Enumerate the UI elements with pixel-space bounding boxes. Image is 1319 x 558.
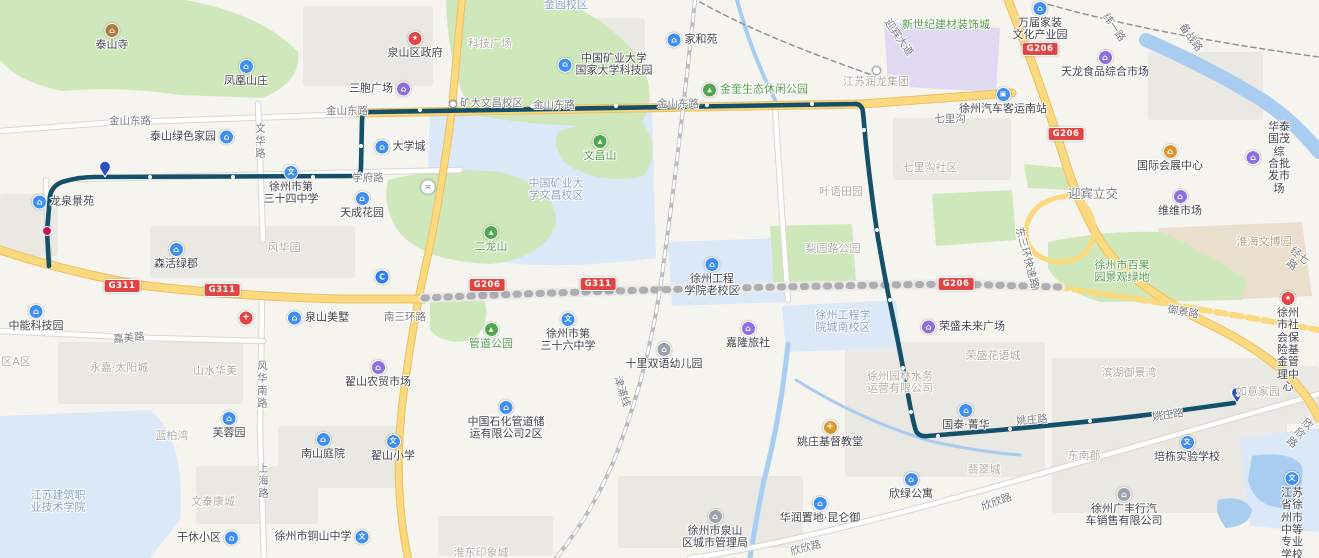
- map-label-text: 嘉隆旅社: [726, 337, 770, 349]
- blue-icon: ⌂: [705, 257, 720, 272]
- blue-icon: ⌂: [667, 33, 682, 48]
- road-badge: G206: [938, 277, 975, 291]
- map-label: 蓝柏湾: [156, 430, 189, 442]
- map-label: 江苏建筑职 业技术学院: [31, 490, 86, 515]
- map-viewport[interactable]: ⌂泰山寺金园校区⌂凤凰山庄★泉山区政府三胞广场⌂科技广场⌂中国矿业大学 国家大学…: [0, 0, 1319, 558]
- map-label[interactable]: 干休小区⌂: [177, 531, 239, 546]
- map-label[interactable]: ⌂十里双语幼儿园: [626, 342, 703, 370]
- map-label: 科技广场: [468, 38, 512, 50]
- map-label-text: 天龙食品综合市场: [1061, 66, 1149, 78]
- map-label-text: 江苏润龙集团: [843, 76, 909, 88]
- map-label-text: 风华园: [268, 242, 301, 254]
- map-label-text: 南三环路: [384, 312, 426, 324]
- map-label: 翡翠城: [968, 464, 1001, 476]
- school-icon: 文: [561, 312, 576, 327]
- map-label[interactable]: ⌂天龙食品综合市场: [1061, 50, 1149, 78]
- map-label: 新世纪建材装饰城: [902, 19, 990, 31]
- map-label: 淮海文博园: [1237, 236, 1292, 248]
- road-badge: G206: [469, 278, 506, 292]
- map-label: 叶语田园: [819, 186, 863, 198]
- map-label: 欣欣路: [1280, 414, 1318, 454]
- school-icon: 文: [1180, 435, 1195, 450]
- map-label-layer: ⌂泰山寺金园校区⌂凤凰山庄★泉山区政府三胞广场⌂科技广场⌂中国矿业大学 国家大学…: [0, 0, 1319, 558]
- map-label-text: 嘉美路: [113, 332, 145, 346]
- blue-icon: ⌂: [375, 140, 390, 155]
- map-label-text: 江苏建筑职 业技术学院: [31, 490, 86, 515]
- map-label: 七里沟社区: [903, 162, 958, 174]
- map-label[interactable]: ⌂大学城: [375, 140, 426, 155]
- park-icon: ▲: [484, 225, 499, 240]
- blue-icon: ⌂: [222, 411, 237, 426]
- church-icon: +: [823, 420, 838, 435]
- map-label-text: 东南郡: [1068, 450, 1101, 462]
- map-label-text: 迎宾立交: [1068, 187, 1118, 201]
- map-label-text: 欣欣路: [1280, 414, 1318, 454]
- map-label: 金山东路: [657, 99, 699, 111]
- junction-icon: ≍: [421, 180, 436, 195]
- map-label: 金山东路: [326, 106, 368, 118]
- map-label-text: 翟山小学: [371, 450, 415, 462]
- map-label[interactable]: ⌂龙泉景苑: [32, 195, 94, 210]
- road-badge: G311: [580, 277, 617, 291]
- map-label-text: 十里双语幼儿园: [626, 358, 703, 370]
- map-label-text: 徐州工程 学院老校区: [685, 273, 740, 298]
- map-label-text: 金山东路: [533, 100, 575, 112]
- market-icon: ⌂: [921, 320, 936, 335]
- map-label-text: 泉山美墅: [305, 312, 349, 324]
- map-label: 金山东路: [533, 100, 575, 112]
- map-label[interactable]: ⌂翟山农贸市场: [345, 360, 411, 388]
- map-label[interactable]: ⌂徐州工程 学院老校区: [685, 257, 740, 298]
- map-label: ▲二龙山: [475, 225, 508, 253]
- map-label[interactable]: ⌂泰山寺: [96, 23, 129, 51]
- redplus-icon: +: [239, 311, 254, 326]
- map-label-text: 徐州汽车客运南站: [959, 103, 1047, 115]
- map-label-text: 欣欣路: [789, 539, 822, 558]
- map-label-text: 科技广场: [468, 38, 512, 50]
- map-label: 风华园: [268, 242, 301, 254]
- map-label-text: 七里沟社区: [903, 162, 958, 174]
- map-label[interactable]: 三胞广场⌂: [349, 82, 411, 97]
- blue-icon: ⌂: [499, 400, 514, 415]
- market-icon: ⌂: [1173, 189, 1188, 204]
- map-label: 徐州工程学 院城南校区: [816, 310, 871, 335]
- map-label-text: 荣盛未来广场: [939, 321, 1005, 333]
- market-icon: ⌂: [741, 321, 756, 336]
- map-label: 嘉美路: [113, 332, 145, 346]
- map-label-text: 姚庄路: [1152, 408, 1185, 424]
- map-label[interactable]: ⌂芙蓉园: [213, 411, 246, 439]
- school-icon: 文: [1285, 471, 1300, 486]
- map-label-text: 维维市场: [1158, 205, 1202, 217]
- map-label-text: 徐州市百果 园景观绿地: [1095, 260, 1150, 285]
- map-label: 金园校区: [544, 0, 588, 11]
- map-label: 金山东路: [109, 116, 151, 128]
- map-label: 上海路: [256, 462, 268, 500]
- map-label: 江苏润龙集团: [843, 66, 909, 88]
- map-label-text: 淮东印象城: [454, 547, 509, 558]
- map-label-text: 大学城: [393, 141, 426, 153]
- map-label: 滨湖御景湾: [1102, 367, 1157, 379]
- map-label-text: 泰山寺: [96, 39, 129, 51]
- school-icon: 文: [355, 530, 370, 545]
- blue-icon: ⌂: [813, 496, 828, 511]
- map-label: 南三环路: [384, 312, 426, 324]
- map-label: 中国矿业大 学文昌校区: [529, 178, 584, 203]
- map-label-text: 风华南路: [255, 360, 267, 410]
- map-label: 徐州园林水务 运营有限公司: [867, 371, 933, 396]
- market-icon: ⌂: [371, 360, 386, 375]
- map-label[interactable]: ⌂中国矿业大学 国家大学科技园: [558, 53, 653, 78]
- map-label-text: 荣盛花语城: [966, 350, 1021, 362]
- map-label-text: 泉山区政府: [388, 47, 443, 59]
- map-label[interactable]: 文徐州市第 三十四中学: [264, 165, 319, 206]
- road-badge: G206: [1022, 42, 1059, 56]
- map-label[interactable]: ⌂森活绿郡: [154, 242, 198, 270]
- road-badge: G311: [104, 279, 141, 293]
- blue-icon: ⌂: [287, 311, 302, 326]
- map-label-text: 欣欣路: [980, 492, 1014, 514]
- map-label-text: 凤凰山庄: [224, 75, 268, 87]
- ramp-icon: C: [375, 270, 390, 285]
- map-label-text: 华润置地·昆仑御: [780, 512, 861, 524]
- map-label-text: 中国矿业大学 国家大学科技园: [576, 53, 653, 78]
- map-label-text: 区A区: [1, 356, 31, 368]
- bus-icon: ▣: [996, 87, 1011, 102]
- map-label: ▲文昌山: [584, 134, 617, 162]
- blue-icon: ⌂: [316, 432, 331, 447]
- map-label: 山水华美: [193, 365, 237, 377]
- map-label-text: 淮海文博园: [1237, 236, 1292, 248]
- map-label-text: 徐州市第 三十六中学: [541, 328, 596, 353]
- map-label-text: 纬一路: [1099, 12, 1127, 45]
- blue-icon: ⌂: [239, 59, 254, 74]
- map-label: 经七路: [1278, 244, 1311, 277]
- dot-icon: [872, 66, 881, 75]
- map-label-text: 山水华美: [193, 365, 237, 377]
- map-label[interactable]: ⌂家和苑: [667, 33, 718, 48]
- map-label[interactable]: ⌂维维市场: [1158, 189, 1202, 217]
- map-label[interactable]: 文江苏省徐州市 中等专业学校: [1279, 471, 1306, 558]
- map-label-text: 徐州市社会保 险基金管理中心: [1273, 307, 1304, 393]
- gov-icon: ★: [408, 31, 423, 46]
- map-label-text: 徐州广丰行汽 车销售有限公司: [1086, 503, 1163, 528]
- map-label-text: 备战路: [1176, 22, 1204, 55]
- map-label-text: 家和苑: [685, 34, 718, 46]
- map-label[interactable]: ⌂欣绿公寓: [889, 472, 933, 500]
- blue-icon: ⌂: [959, 403, 974, 418]
- map-label-text: 梨园路公园: [806, 243, 861, 255]
- map-label[interactable]: ⌂万届家装 文化产业园: [1013, 1, 1068, 42]
- map-label-text: 管道公园: [469, 338, 513, 350]
- map-label[interactable]: ⌂中国石化管道储 运有限公司2区: [468, 400, 545, 441]
- map-label-text: 永嘉·太阳城: [90, 362, 149, 374]
- map-label: 东三环快速路: [1012, 226, 1040, 290]
- road-badge: G206: [1048, 127, 1085, 141]
- map-label: 欣欣路: [789, 539, 822, 558]
- map-label: 迎宾立交: [1068, 187, 1118, 201]
- map-label-text: 三胞广场: [349, 83, 393, 95]
- map-label[interactable]: 文徐州市第 三十六中学: [541, 312, 596, 353]
- map-label-text: 江苏省徐州市 中等专业学校: [1279, 487, 1306, 558]
- map-label[interactable]: ⌂嘉隆旅社: [726, 321, 770, 349]
- map-label[interactable]: ⌂泉山美墅: [287, 311, 349, 326]
- map-label-text: 上海路: [256, 462, 268, 500]
- map-label-text: 中国矿业大 学文昌校区: [529, 178, 584, 203]
- map-label: 淮东印象城: [454, 547, 509, 558]
- map-label: 文华路: [253, 122, 265, 160]
- map-label-text: 翡翠城: [968, 464, 1001, 476]
- blue-icon: ⌂: [1033, 1, 1048, 16]
- map-label-text: 龙泉景苑: [50, 196, 94, 208]
- blue-icon: ⌂: [29, 304, 44, 319]
- map-label-text: 新世纪建材装饰城: [902, 19, 990, 31]
- map-label-text: 金山东路: [109, 116, 151, 128]
- map-label[interactable]: ▣徐州汽车客运南站: [959, 87, 1047, 115]
- map-label-text: 御景路: [1166, 304, 1199, 321]
- map-label: 姚庄路: [1152, 408, 1185, 424]
- map-label-text: 南山庭院: [301, 448, 345, 460]
- map-label-text: 国泰·菁华: [942, 419, 990, 431]
- map-label-text: 天成花园: [340, 207, 384, 219]
- map-label-text: 东三环快速路: [1012, 226, 1040, 290]
- map-label-text: 泰山绿色家园: [150, 131, 216, 143]
- blue-icon: ⌂: [224, 531, 239, 546]
- map-label: 纬一路: [1099, 12, 1127, 45]
- map-label-text: 欣绿公寓: [889, 488, 933, 500]
- market-icon: ⌂: [396, 82, 411, 97]
- market-icon: ⌂: [1246, 151, 1261, 166]
- map-label[interactable]: ★徐州市社会保 险基金管理中心: [1273, 291, 1304, 393]
- map-label: 备战路: [1176, 22, 1204, 55]
- map-label-text: 蓝柏湾: [156, 430, 189, 442]
- gov-icon: ★: [1281, 291, 1296, 306]
- stopdot-icon: [449, 100, 457, 108]
- company-icon: ⌂: [1117, 487, 1132, 502]
- map-label[interactable]: ★泉山区政府: [388, 31, 443, 59]
- temple-icon: ⌂: [105, 23, 120, 38]
- map-label-text: 森活绿郡: [154, 258, 198, 270]
- redplus-icon-marker[interactable]: +: [239, 311, 254, 326]
- junction-icon-marker[interactable]: ≍: [421, 180, 436, 195]
- map-label-text: 翟山农贸市场: [345, 376, 411, 388]
- park-icon: ▲: [702, 83, 717, 98]
- map-label: ▲管道公园: [469, 322, 513, 350]
- map-label-text: 文华路: [253, 122, 265, 160]
- map-label-text: 徐州市泉山 区城市管理局: [682, 525, 748, 550]
- blue-icon: ⌂: [169, 242, 184, 257]
- map-label: 欣欣路: [980, 492, 1014, 514]
- map-label-text: 文昌山: [584, 150, 617, 162]
- map-label-text: 经七路: [1278, 244, 1311, 277]
- map-label-text: 文泰康城: [191, 496, 235, 508]
- map-label[interactable]: ⌂徐州市泉山 区城市管理局: [682, 509, 748, 550]
- blue-icon: ⌂: [355, 191, 370, 206]
- expo-icon: ⌂: [1163, 144, 1178, 159]
- map-label-text: 二龙山: [475, 241, 508, 253]
- park-icon: ▲: [593, 134, 608, 149]
- company-icon: ⌂: [708, 509, 723, 524]
- map-label-text: 中能科技园: [9, 320, 64, 332]
- map-label: 姚庄路: [1016, 414, 1048, 428]
- map-label[interactable]: ⌂南山庭院: [301, 432, 345, 460]
- map-label: 永嘉·太阳城: [90, 362, 149, 374]
- map-label-text: 学府路: [352, 173, 384, 185]
- map-label[interactable]: ⌂国际会展中心: [1137, 144, 1203, 172]
- map-label: 梨园路公园: [806, 243, 861, 255]
- map-label-text: 徐州市铜山中学: [275, 531, 352, 543]
- map-label[interactable]: 徐州市铜山中学文: [275, 530, 370, 545]
- map-label[interactable]: ⌂华泰国茂综 合批发市场: [1246, 121, 1295, 195]
- map-label-text: 叶语田园: [819, 186, 863, 198]
- map-label[interactable]: 泰山绿色家园⌂: [150, 130, 234, 145]
- school-icon: 文: [284, 165, 299, 180]
- map-label: 如意家园: [1236, 386, 1280, 398]
- map-label: 区A区: [1, 356, 31, 368]
- map-label-text: 中国石化管道储 运有限公司2区: [468, 416, 545, 441]
- map-label-text: 徐州工程学 院城南校区: [816, 310, 871, 335]
- road-badge: G311: [204, 283, 241, 297]
- map-label[interactable]: ⌂天成花园: [340, 191, 384, 219]
- map-label-text: 姚庄基督教堂: [797, 436, 863, 448]
- map-label-text: 万届家装 文化产业园: [1013, 17, 1068, 42]
- map-label[interactable]: ⌂徐州广丰行汽 车销售有限公司: [1086, 487, 1163, 528]
- park-icon: ▲: [484, 322, 499, 337]
- map-label[interactable]: 文培栋实验学校: [1154, 435, 1220, 463]
- map-label-text: 滨湖御景湾: [1102, 367, 1157, 379]
- school-icon: 文: [386, 434, 401, 449]
- map-label-text: 矿大文昌校区: [460, 98, 523, 110]
- map-label-text: 姚庄路: [1016, 414, 1048, 428]
- map-label[interactable]: ⌂荣盛未来广场: [921, 320, 1005, 335]
- map-label-text: 津浦线: [611, 375, 632, 409]
- map-label[interactable]: ⌂中能科技园: [9, 304, 64, 332]
- map-label: 文泰康城: [191, 496, 235, 508]
- map-label-text: 七里沟: [934, 114, 966, 126]
- map-label: 荣盛花语城: [966, 350, 1021, 362]
- blue-icon: ⌂: [904, 472, 919, 487]
- map-label-text: 金山东路: [326, 106, 368, 118]
- map-label: 东南郡: [1068, 450, 1101, 462]
- map-label-text: 干休小区: [177, 532, 221, 544]
- map-label-text: 华泰国茂综 合批发市场: [1264, 121, 1295, 195]
- map-label-text: 国际会展中心: [1137, 160, 1203, 172]
- map-label-text: 如意家园: [1236, 386, 1280, 398]
- map-label[interactable]: ⌂华润置地·昆仑御: [780, 496, 861, 524]
- market-icon: ⌂: [1098, 50, 1113, 65]
- map-label: 御景路: [1166, 304, 1199, 321]
- map-label: 七里沟: [934, 114, 966, 126]
- map-label-text: 芙蓉园: [213, 427, 246, 439]
- map-label-text: 徐州园林水务 运营有限公司: [867, 371, 933, 396]
- company-icon: ⌂: [657, 342, 672, 357]
- map-label: 矿大文昌校区: [449, 98, 523, 110]
- map-label: 津浦线: [611, 375, 632, 409]
- blue-icon: ⌂: [32, 195, 47, 210]
- map-label[interactable]: ⌂凤凰山庄: [224, 59, 268, 87]
- map-label[interactable]: 文翟山小学: [371, 434, 415, 462]
- map-label[interactable]: +姚庄基督教堂: [797, 420, 863, 448]
- map-label: ▲金奎生态休闲公园: [702, 83, 808, 98]
- map-label-text: 金园校区: [544, 0, 588, 11]
- map-label: 学府路: [352, 173, 384, 185]
- map-label-text: 徐州市第 三十四中学: [264, 181, 319, 206]
- blue-icon: ⌂: [219, 130, 234, 145]
- map-label: 徐州市百果 园景观绿地: [1095, 260, 1150, 285]
- map-label-text: 金奎生态休闲公园: [720, 84, 808, 96]
- ramp-icon-marker[interactable]: C: [375, 270, 390, 285]
- blue-icon: ⌂: [558, 58, 573, 73]
- map-label: 风华南路: [255, 360, 267, 410]
- map-label-text: 培栋实验学校: [1154, 451, 1220, 463]
- map-label[interactable]: ⌂国泰·菁华: [942, 403, 990, 431]
- map-label-text: 金山东路: [657, 99, 699, 111]
